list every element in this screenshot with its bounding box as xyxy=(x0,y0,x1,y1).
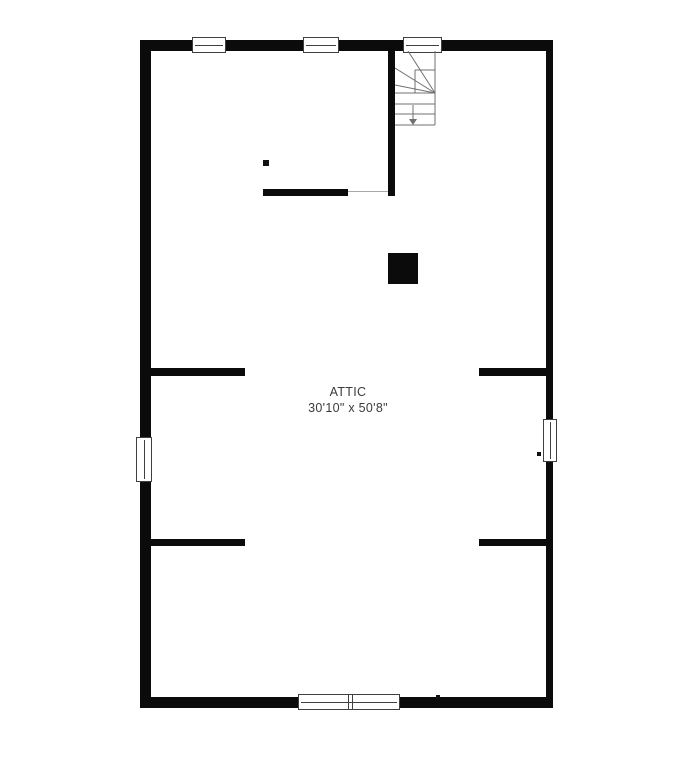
window-left xyxy=(136,437,152,482)
window-mullion xyxy=(348,695,349,709)
window-pane-line xyxy=(306,45,336,46)
attic-floorplan: ATTIC 30'10" x 50'8" xyxy=(0,0,693,768)
window-pane-line xyxy=(550,422,551,459)
staircase xyxy=(395,51,436,126)
window-pane-line xyxy=(301,702,397,703)
window-top-2 xyxy=(303,37,339,53)
post-marker xyxy=(263,160,269,166)
window-bottom-double xyxy=(298,694,400,710)
window-right xyxy=(543,419,557,462)
interior-wall-upper-horizontal xyxy=(263,189,348,196)
window-pane-line xyxy=(406,45,439,46)
window-pane-line xyxy=(144,440,145,479)
knee-wall-lower-left xyxy=(140,539,245,546)
room-label: ATTIC 30'10" x 50'8" xyxy=(248,384,448,416)
stair-winder-line xyxy=(408,51,435,93)
room-dimensions: 30'10" x 50'8" xyxy=(248,400,448,416)
window-top-1 xyxy=(192,37,226,53)
window-mullion xyxy=(352,695,353,709)
tick-marker-bottom xyxy=(436,695,440,699)
chimney-block xyxy=(388,253,418,284)
wall-opening-line xyxy=(348,191,388,192)
window-pane-line xyxy=(195,45,223,46)
knee-wall-mid-right xyxy=(479,368,553,376)
stair-down-arrow-icon xyxy=(409,119,417,125)
knee-wall-lower-right xyxy=(479,539,553,546)
interior-wall-stairwell-vertical xyxy=(388,51,395,196)
knee-wall-mid-left xyxy=(140,368,245,376)
room-name: ATTIC xyxy=(248,384,448,400)
tick-marker-right-window xyxy=(537,452,541,456)
